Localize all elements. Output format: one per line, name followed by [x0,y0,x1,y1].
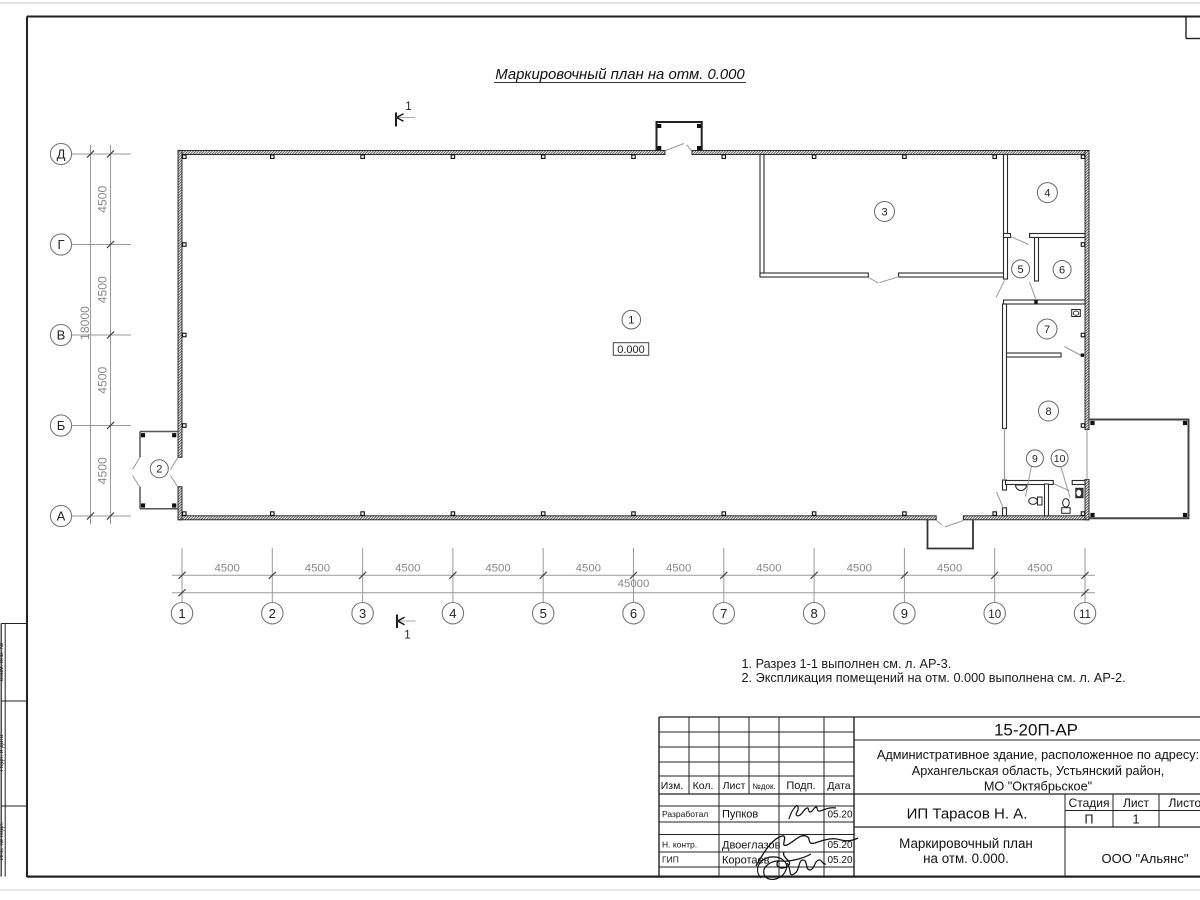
svg-text:А: А [57,509,66,524]
svg-text:5: 5 [540,606,547,621]
svg-text:П: П [1085,813,1094,827]
svg-text:05.20: 05.20 [827,840,852,851]
svg-text:11: 11 [1079,609,1091,621]
svg-text:4: 4 [449,606,456,621]
svg-text:4: 4 [1044,188,1050,200]
svg-text:Н. контр.: Н. контр. [662,840,697,850]
svg-text:4500: 4500 [847,563,872,575]
svg-text:4500: 4500 [95,457,109,484]
svg-text:1: 1 [1133,813,1140,827]
svg-text:ИП Тарасов Н. А.: ИП Тарасов Н. А. [907,806,1028,823]
svg-text:4500: 4500 [95,185,109,212]
svg-text:6: 6 [630,606,637,621]
svg-text:4500: 4500 [576,563,601,575]
svg-text:4500: 4500 [1027,563,1052,575]
svg-text:Административное здание, распо: Административное здание, расположенное п… [877,748,1199,762]
svg-text:Дата: Дата [827,780,850,792]
svg-text:4500: 4500 [756,563,781,575]
svg-text:Подп.: Подп. [786,780,815,792]
svg-text:4500: 4500 [485,563,510,575]
svg-text:1: 1 [405,101,411,113]
svg-text:4500: 4500 [395,563,420,575]
svg-text:10: 10 [988,609,1001,621]
svg-text:05.20: 05.20 [827,810,852,821]
svg-text:15-20П-АР: 15-20П-АР [994,721,1078,740]
svg-text:4500: 4500 [937,563,962,575]
svg-text:на отм. 0.000.: на отм. 0.000. [923,851,1009,866]
svg-text:8: 8 [1045,406,1051,418]
svg-text:Лист: Лист [1123,796,1150,810]
svg-text:3: 3 [881,206,887,218]
svg-text:Лист: Лист [723,780,746,792]
svg-text:Пупков: Пупков [722,809,758,821]
svg-text:Подп. и дата: Подп. и дата [0,734,5,771]
svg-text:2: 2 [269,606,276,621]
svg-text:05.20: 05.20 [827,855,852,866]
svg-text:18000: 18000 [78,306,92,340]
svg-text:4500: 4500 [95,366,109,393]
svg-text:45000: 45000 [618,578,650,590]
svg-text:1. Разрез 1-1 выполнен см. л.: 1. Разрез 1-1 выполнен см. л. АР-3. [742,657,952,671]
svg-text:Маркировочный план: Маркировочный план [899,836,1033,851]
svg-text:Г: Г [57,237,64,252]
svg-text:Инв. № подл.: Инв. № подл. [0,821,5,860]
svg-text:9: 9 [901,606,908,621]
svg-text:4500: 4500 [666,563,691,575]
svg-text:6: 6 [1059,264,1065,276]
svg-text:Б: Б [57,418,66,433]
svg-text:Архангельская область, Устьянс: Архангельская область, Устьянский район, [912,764,1165,778]
svg-text:4500: 4500 [214,563,239,575]
svg-text:Взам. инв. №: Взам. инв. № [0,642,5,681]
svg-text:2. Экспликация помещений на от: 2. Экспликация помещений на отм. 0.000 в… [742,671,1126,685]
svg-text:2: 2 [156,464,162,476]
svg-text:Д: Д [57,147,66,162]
svg-text:№док.: №док. [752,782,775,791]
svg-text:3: 3 [359,606,366,621]
svg-text:Кол.: Кол. [693,780,714,792]
svg-text:7: 7 [720,606,727,621]
svg-text:7: 7 [1044,324,1050,336]
svg-text:ООО "Альянс": ООО "Альянс" [1102,851,1189,866]
svg-text:МО "Октябрьское": МО "Октябрьское" [984,780,1092,794]
svg-text:8: 8 [810,606,817,621]
svg-text:Листов: Листов [1169,796,1200,810]
svg-text:10: 10 [1054,453,1066,465]
svg-text:9: 9 [1032,453,1038,465]
svg-text:1: 1 [628,315,634,327]
svg-text:Двоеглазов: Двоеглазов [722,840,781,852]
svg-text:5: 5 [1018,264,1024,276]
svg-text:Маркировочный план на отм. 0.0: Маркировочный план на отм. 0.000 [495,67,745,83]
svg-text:Изм.: Изм. [661,780,684,792]
svg-text:4500: 4500 [95,276,109,303]
svg-text:Разработал: Разработал [662,809,708,819]
svg-text:Стадия: Стадия [1069,796,1110,810]
svg-text:1: 1 [404,630,410,642]
svg-text:В: В [57,328,66,343]
svg-text:4500: 4500 [305,563,330,575]
svg-text:0.000: 0.000 [617,344,645,356]
svg-text:1: 1 [178,606,185,621]
svg-text:ГИП: ГИП [662,855,679,865]
